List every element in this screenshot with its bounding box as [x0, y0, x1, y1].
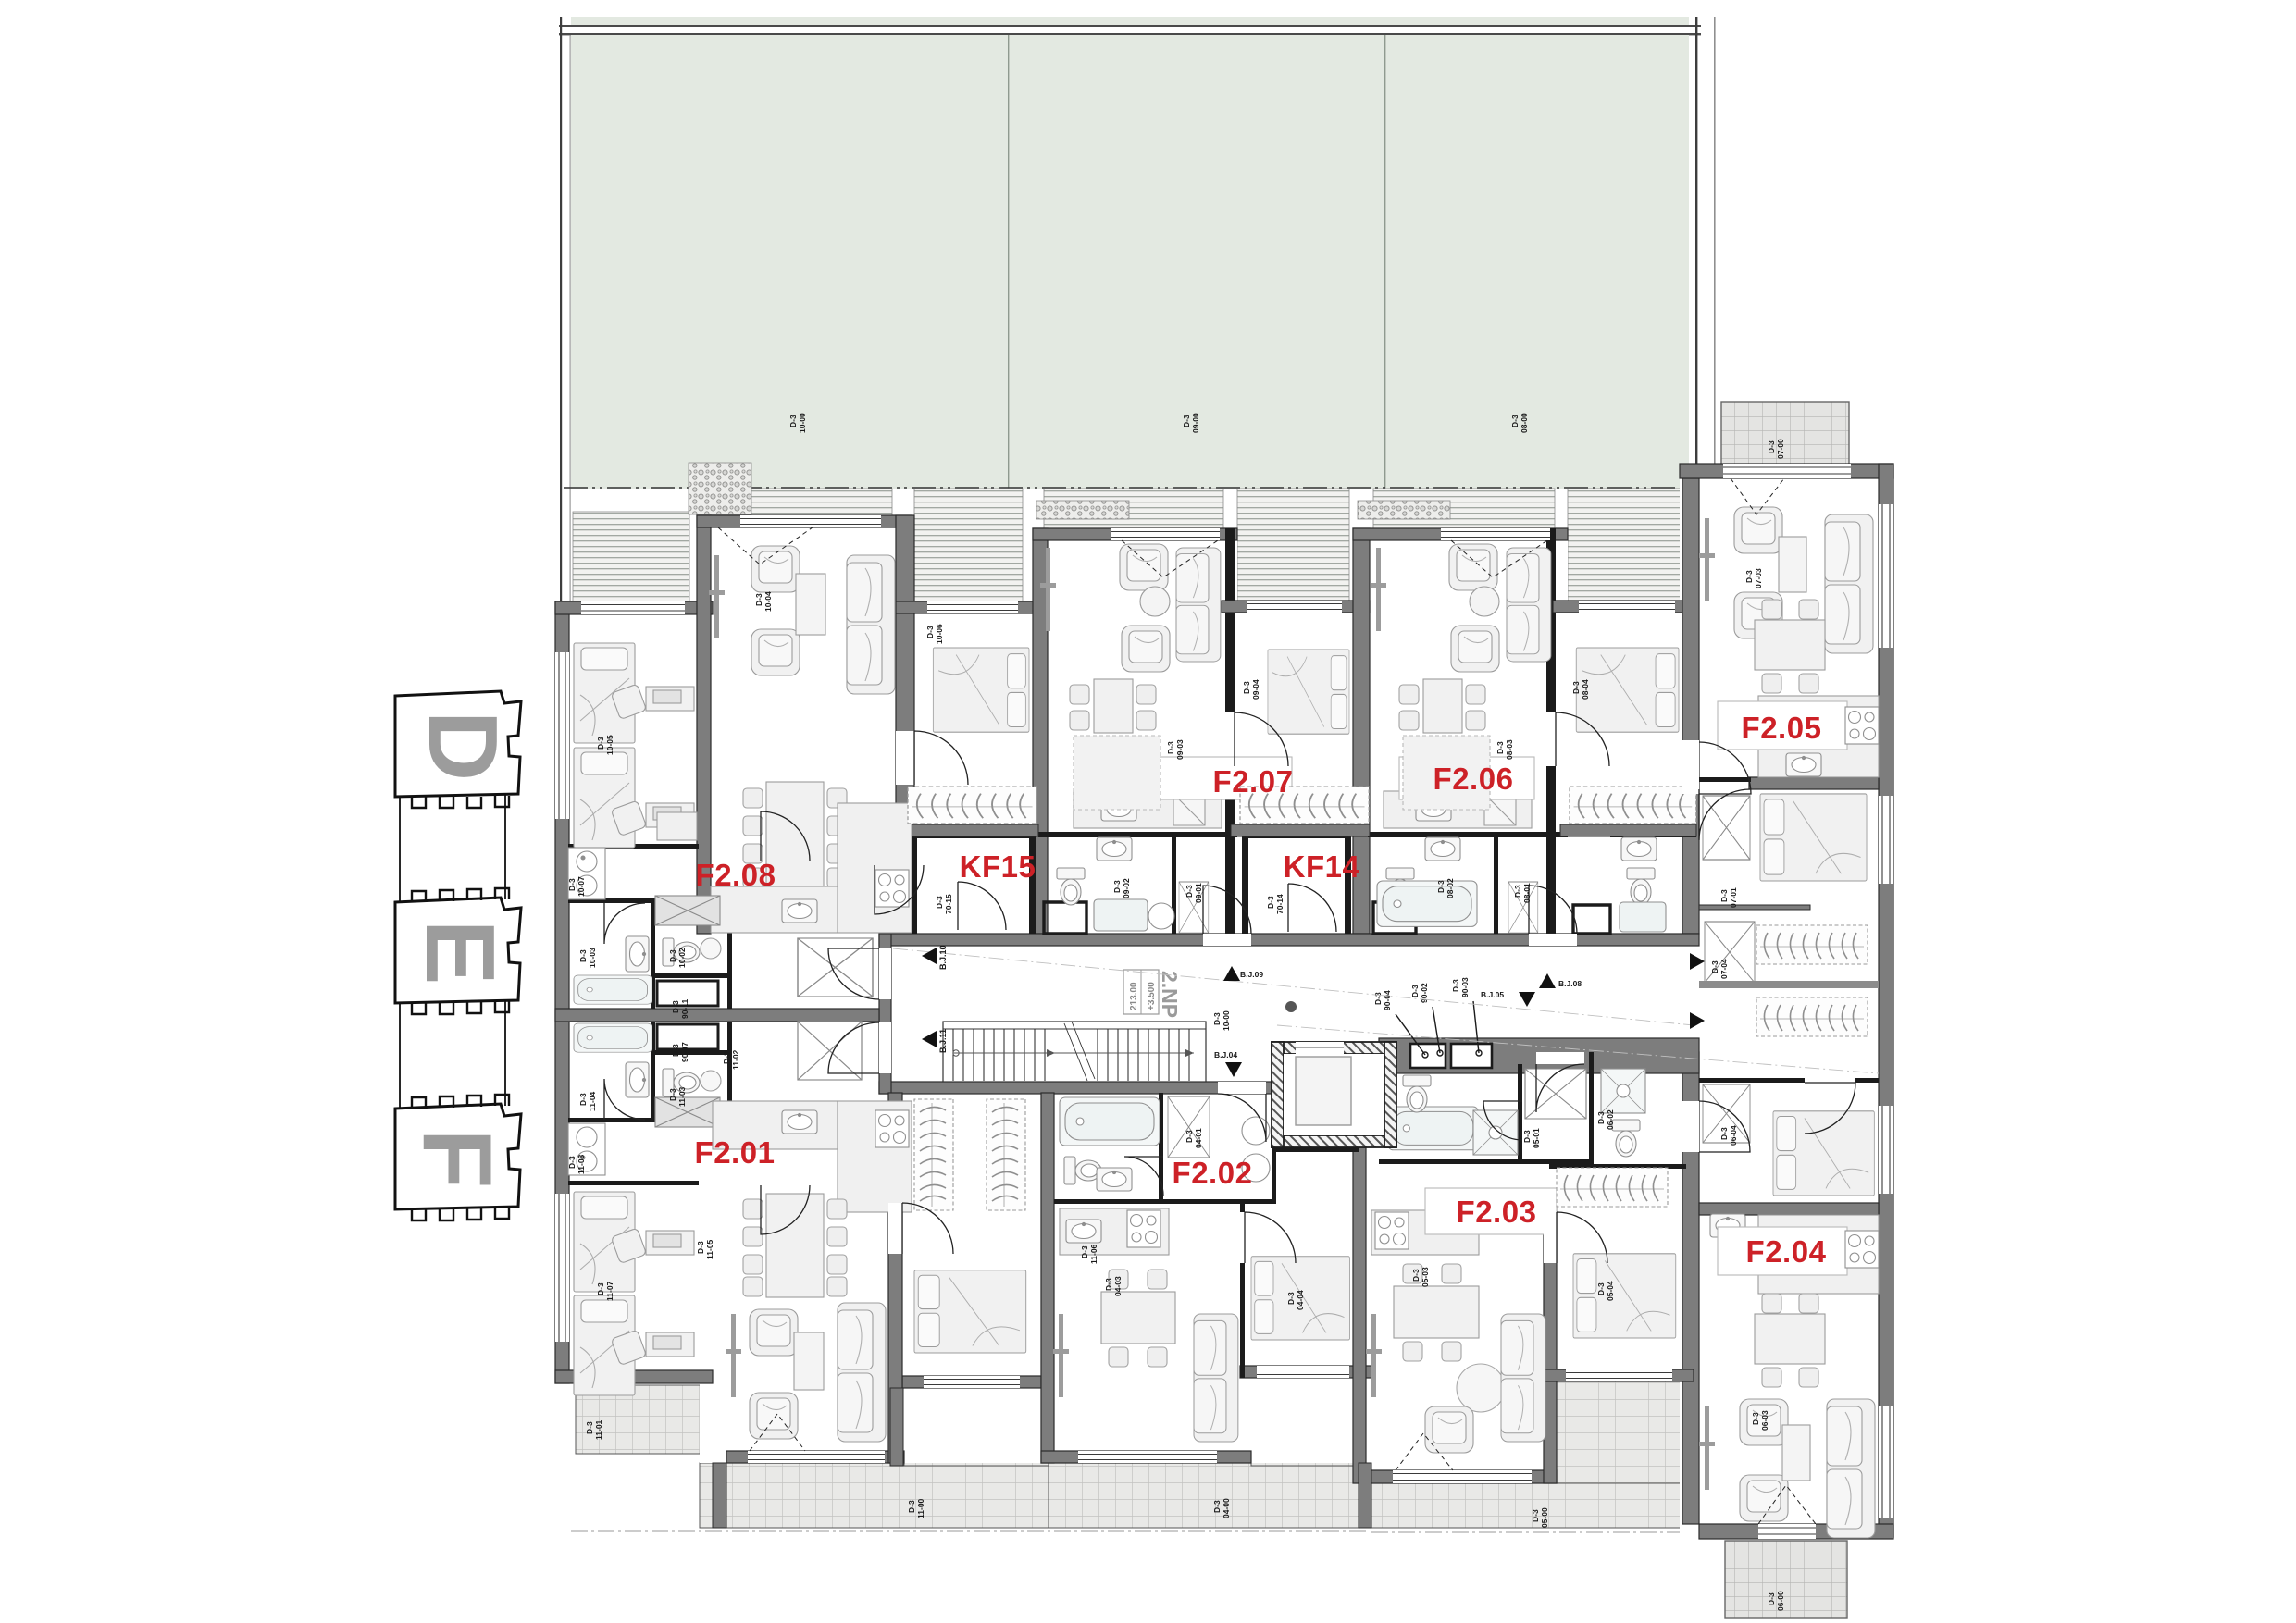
svg-text:D-3: D-3: [1596, 1111, 1606, 1124]
svg-text:D-3: D-3: [788, 415, 798, 427]
svg-text:10-06: 10-06: [935, 624, 944, 644]
svg-text:D-3: D-3: [1710, 960, 1719, 973]
svg-text:D-3: D-3: [1719, 889, 1729, 902]
svg-text:D-3: D-3: [1719, 1127, 1729, 1140]
svg-text:D-3: D-3: [696, 1241, 705, 1254]
svg-text:D-3: D-3: [1212, 1012, 1222, 1025]
svg-text:70-14: 70-14: [1275, 894, 1285, 914]
svg-text:07-00: 07-00: [1776, 439, 1785, 459]
svg-text:2.NP: 2.NP: [1158, 971, 1182, 1018]
svg-text:F2.08: F2.08: [696, 858, 776, 892]
svg-text:D-3: D-3: [1410, 985, 1420, 997]
svg-text:06-04: 06-04: [1729, 1125, 1738, 1146]
svg-text:D-3: D-3: [578, 949, 588, 962]
svg-text:05-00: 05-00: [1540, 1507, 1549, 1528]
svg-text:D-3: D-3: [1496, 741, 1505, 754]
svg-text:D-3: D-3: [567, 1156, 577, 1169]
svg-text:08-03: 08-03: [1505, 739, 1514, 760]
svg-text:06-03: 06-03: [1760, 1410, 1769, 1431]
svg-text:04-01: 04-01: [1194, 1128, 1203, 1148]
svg-text:06-02: 06-02: [1606, 1109, 1615, 1130]
svg-text:D-3: D-3: [567, 878, 577, 891]
svg-text:90-04: 90-04: [1383, 990, 1392, 1010]
svg-text:D-3: D-3: [1286, 1292, 1296, 1305]
svg-text:D-3: D-3: [1767, 1592, 1776, 1605]
svg-text:D-3: D-3: [1767, 440, 1776, 453]
svg-text:F2.05: F2.05: [1742, 711, 1822, 745]
svg-text:11-05: 11-05: [705, 1239, 714, 1259]
svg-text:B.J.09: B.J.09: [1240, 970, 1263, 979]
svg-text:F2.02: F2.02: [1173, 1156, 1253, 1190]
svg-text:10-00: 10-00: [798, 413, 807, 433]
svg-text:04-00: 04-00: [1222, 1498, 1231, 1518]
svg-text:D-3: D-3: [1373, 992, 1383, 1005]
svg-text:F2.03: F2.03: [1457, 1195, 1537, 1229]
svg-text:+3.500: +3.500: [1147, 982, 1157, 1010]
svg-text:11-00: 11-00: [916, 1498, 925, 1518]
svg-text:D-3: D-3: [1513, 885, 1522, 898]
svg-text:D-3: D-3: [668, 1088, 677, 1101]
svg-text:D-3: D-3: [1522, 1130, 1532, 1143]
svg-text:D-3: D-3: [1596, 1282, 1606, 1295]
svg-text:90-07: 90-07: [680, 1042, 689, 1062]
svg-text:09-04: 09-04: [1251, 679, 1260, 700]
svg-text:D: D: [408, 711, 517, 782]
svg-text:D-3: D-3: [1266, 896, 1275, 909]
svg-text:D-3: D-3: [925, 626, 935, 638]
svg-text:D-3: D-3: [1185, 1130, 1194, 1143]
svg-text:D-3: D-3: [754, 593, 763, 606]
svg-text:D-3: D-3: [1751, 1412, 1760, 1425]
svg-text:D-3: D-3: [585, 1421, 594, 1434]
svg-text:D-3: D-3: [668, 949, 677, 962]
svg-text:70-15: 70-15: [944, 894, 953, 914]
svg-text:09-00: 09-00: [1191, 413, 1200, 433]
svg-text:05-03: 05-03: [1421, 1267, 1430, 1287]
svg-text:08-01: 08-01: [1522, 883, 1532, 903]
svg-text:11-01: 11-01: [594, 1419, 603, 1440]
svg-text:D-3: D-3: [596, 737, 605, 750]
svg-text:D-3: D-3: [1451, 979, 1460, 992]
svg-text:D-3: D-3: [1531, 1509, 1540, 1522]
svg-text:D-3: D-3: [722, 1051, 731, 1064]
svg-text:D-3: D-3: [1080, 1245, 1089, 1258]
svg-text:D-3: D-3: [907, 1500, 916, 1513]
svg-text:07-03: 07-03: [1754, 568, 1763, 588]
svg-text:09-01: 09-01: [1194, 883, 1203, 903]
svg-text:D-3: D-3: [1166, 741, 1175, 754]
svg-text:F2.06: F2.06: [1433, 762, 1514, 796]
svg-text:D-3: D-3: [935, 896, 944, 909]
svg-text:D-3: D-3: [1242, 681, 1251, 694]
svg-text:D-3: D-3: [1182, 415, 1191, 427]
svg-text:F2.01: F2.01: [695, 1135, 776, 1170]
svg-text:08-02: 08-02: [1446, 878, 1455, 898]
svg-text:10-00: 10-00: [1222, 1010, 1231, 1031]
svg-text:D-3: D-3: [1510, 415, 1520, 427]
svg-text:07-01: 07-01: [1729, 887, 1738, 908]
svg-text:11-08: 11-08: [577, 1154, 586, 1174]
svg-text:10-07: 10-07: [577, 876, 586, 897]
svg-text:KF15: KF15: [960, 849, 1036, 884]
svg-text:09-03: 09-03: [1175, 739, 1185, 760]
svg-text:06-00: 06-00: [1776, 1591, 1785, 1611]
svg-text:D-3: D-3: [1212, 1500, 1222, 1513]
svg-text:10-03: 10-03: [588, 948, 597, 968]
svg-text:90-03: 90-03: [1460, 977, 1470, 997]
svg-text:B.J.11: B.J.11: [938, 1029, 948, 1053]
svg-text:KF14: KF14: [1284, 849, 1360, 884]
svg-text:F2.07: F2.07: [1213, 764, 1294, 799]
svg-text:B.J.04: B.J.04: [1214, 1050, 1237, 1059]
svg-text:07-04: 07-04: [1719, 959, 1729, 979]
svg-text:B.J.08: B.J.08: [1558, 979, 1582, 988]
svg-text:F2.04: F2.04: [1746, 1234, 1827, 1269]
svg-text:D-3: D-3: [1571, 681, 1581, 694]
svg-text:90-11: 90-11: [680, 998, 689, 1019]
svg-text:11-03: 11-03: [677, 1086, 687, 1107]
svg-text:D-3: D-3: [578, 1093, 588, 1106]
svg-text:D-3: D-3: [1112, 880, 1122, 893]
svg-text:F: F: [403, 1129, 512, 1189]
svg-text:11-07: 11-07: [605, 1281, 614, 1301]
svg-text:04-03: 04-03: [1113, 1276, 1123, 1296]
svg-text:D-3: D-3: [1744, 570, 1754, 583]
svg-text:10-04: 10-04: [763, 591, 773, 612]
svg-text:D-3: D-3: [1104, 1278, 1113, 1291]
svg-text:D-3: D-3: [1436, 880, 1446, 893]
svg-text:08-00: 08-00: [1520, 413, 1529, 433]
svg-text:04-04: 04-04: [1296, 1290, 1305, 1310]
svg-text:E: E: [405, 920, 515, 985]
svg-text:D-3: D-3: [671, 1000, 680, 1013]
svg-text:213.00: 213.00: [1129, 982, 1139, 1010]
svg-text:D-3: D-3: [596, 1282, 605, 1295]
svg-text:11-04: 11-04: [588, 1091, 597, 1111]
svg-text:D-3: D-3: [1411, 1269, 1421, 1282]
svg-text:D-3: D-3: [671, 1044, 680, 1057]
svg-text:B.J.05: B.J.05: [1481, 990, 1504, 999]
svg-text:11-06: 11-06: [1089, 1244, 1098, 1264]
svg-text:05-04: 05-04: [1606, 1281, 1615, 1301]
svg-text:10-02: 10-02: [677, 948, 687, 968]
svg-text:B.J.10: B.J.10: [938, 945, 948, 970]
svg-text:10-05: 10-05: [605, 735, 614, 755]
svg-text:11-02: 11-02: [731, 1049, 740, 1070]
svg-text:08-04: 08-04: [1581, 679, 1590, 700]
svg-text:D-3: D-3: [1185, 885, 1194, 898]
svg-text:05-01: 05-01: [1532, 1128, 1541, 1148]
svg-text:09-02: 09-02: [1122, 878, 1131, 898]
